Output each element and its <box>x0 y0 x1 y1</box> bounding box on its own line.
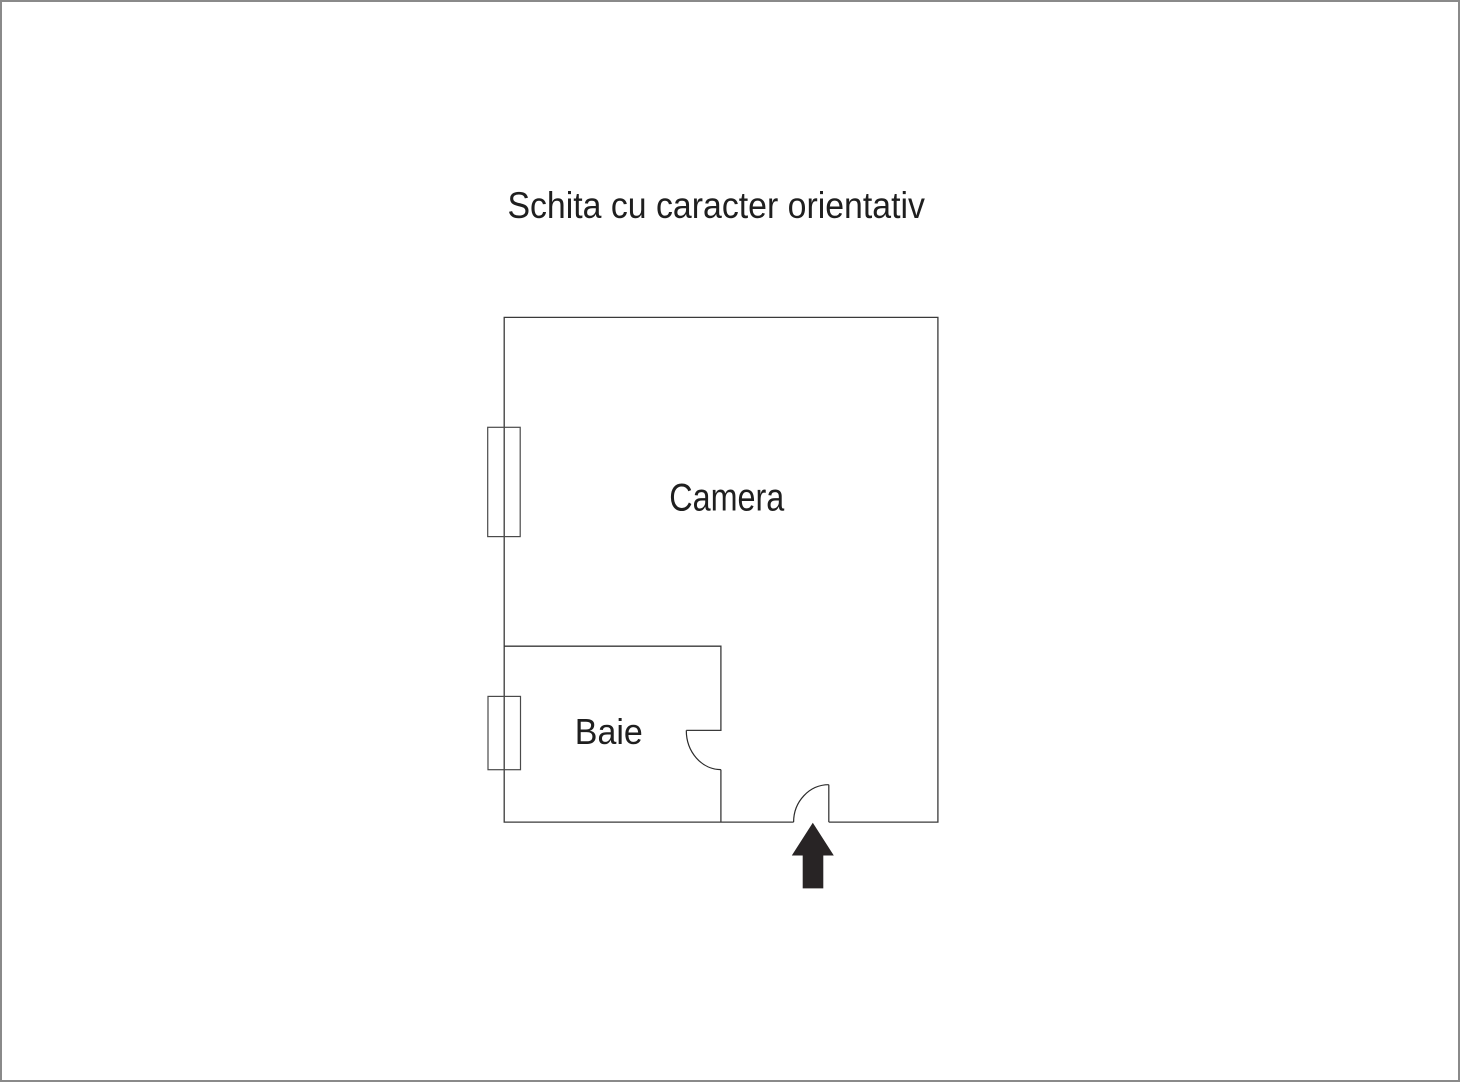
svg-text:Schita cu caracter orientativ: Schita cu caracter orientativ <box>507 185 925 226</box>
svg-text:Baie: Baie <box>575 711 643 752</box>
svg-text:Camera: Camera <box>669 476 784 519</box>
